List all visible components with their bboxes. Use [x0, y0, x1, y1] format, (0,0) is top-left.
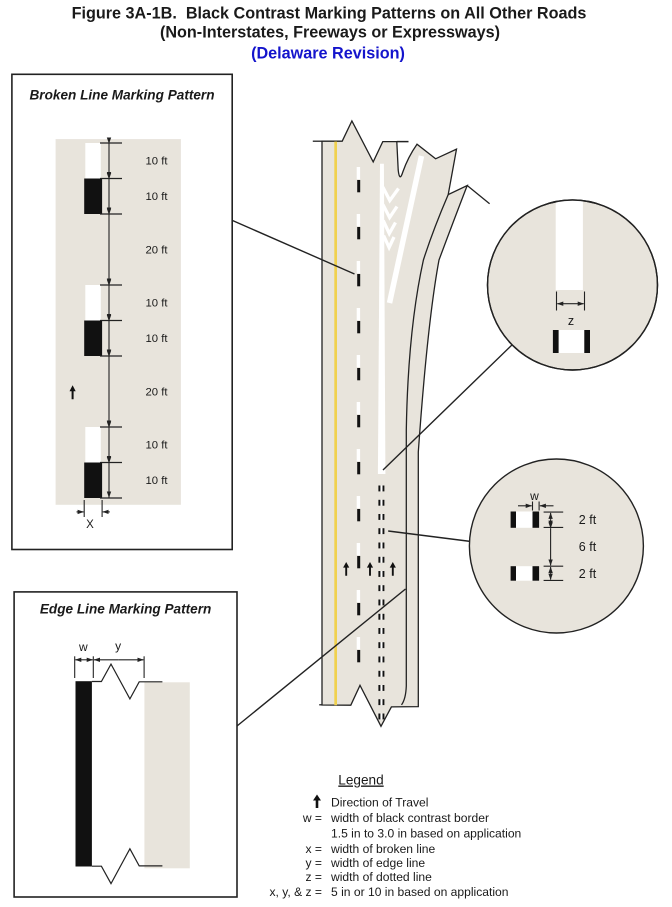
- svg-text:x =: x =: [306, 842, 322, 856]
- svg-text:Edge Line Marking Pattern: Edge Line Marking Pattern: [40, 602, 211, 617]
- svg-text:(Non-Interstates, Freeways or: (Non-Interstates, Freeways or Expressway…: [160, 24, 500, 42]
- svg-text:10 ft: 10 ft: [146, 440, 169, 452]
- svg-text:2 ft: 2 ft: [579, 567, 597, 581]
- svg-text:5 in or 10 in based on applica: 5 in or 10 in based on application: [331, 885, 509, 899]
- svg-text:1.5 in to 3.0 in based on appl: 1.5 in to 3.0 in based on application: [331, 827, 521, 841]
- svg-text:(Delaware Revision): (Delaware Revision): [251, 45, 405, 63]
- svg-text:10 ft: 10 ft: [146, 333, 169, 345]
- svg-text:2 ft: 2 ft: [579, 513, 597, 527]
- svg-text:6 ft: 6 ft: [579, 540, 597, 554]
- svg-text:z: z: [568, 314, 574, 328]
- svg-text:y =: y =: [306, 856, 322, 870]
- svg-text:Figure 3A-1B. Black Contrast: Figure 3A-1B. Black Contrast Marking Pat…: [72, 5, 587, 23]
- svg-text:y: y: [115, 639, 121, 653]
- svg-text:width of black contrast border: width of black contrast border: [330, 811, 489, 825]
- svg-text:width of dotted line: width of dotted line: [330, 870, 432, 884]
- svg-text:10 ft: 10 ft: [146, 191, 169, 203]
- svg-text:10 ft: 10 ft: [146, 298, 169, 310]
- svg-text:Legend: Legend: [338, 773, 383, 788]
- svg-text:w: w: [529, 489, 539, 503]
- svg-text:20 ft: 20 ft: [146, 245, 169, 257]
- svg-text:10 ft: 10 ft: [146, 156, 169, 168]
- svg-text:10 ft: 10 ft: [146, 475, 169, 487]
- svg-text:X: X: [86, 519, 94, 531]
- svg-text:w =: w =: [302, 811, 322, 825]
- svg-text:width of broken line: width of broken line: [330, 842, 435, 856]
- svg-text:Direction of Travel: Direction of Travel: [331, 796, 428, 810]
- svg-text:x, y, & z =: x, y, & z =: [269, 885, 322, 899]
- svg-text:20 ft: 20 ft: [146, 387, 169, 399]
- svg-text:Broken Line Marking Pattern: Broken Line Marking Pattern: [29, 88, 214, 103]
- svg-text:z =: z =: [306, 870, 322, 884]
- svg-text:w: w: [78, 640, 88, 654]
- svg-text:width of edge line: width of edge line: [330, 856, 425, 870]
